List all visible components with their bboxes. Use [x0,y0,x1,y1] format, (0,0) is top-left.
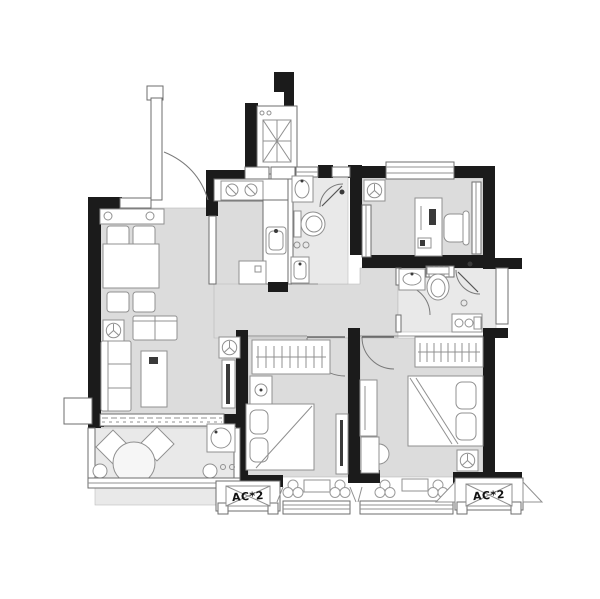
thin-wall [120,198,151,208]
thin-wall [396,315,401,332]
dining-chair [133,226,155,246]
wall-segment [362,166,388,178]
sofa [101,341,131,411]
monitor-icon [429,209,436,225]
faucet-icon [274,229,278,233]
dining-chair [107,292,129,312]
fan-coil-icon [219,337,240,358]
tv-icon [340,420,343,466]
fan-coil-icon [103,320,124,341]
study-window [386,162,454,179]
entry-door-arc [164,152,208,200]
chair-back [463,211,469,245]
wall-segment [483,166,495,258]
fan-coil-icon [457,450,478,471]
wall-segment [453,166,485,178]
planter [93,464,107,478]
sliding-door [100,414,224,426]
tray-icon [149,357,158,364]
toilet [427,274,449,300]
ac-label: AC*2 [232,489,265,504]
shaft-door [245,167,269,179]
planter [203,464,217,478]
wall-segment [483,330,495,477]
entry-door [147,86,208,200]
plant-icon [283,480,303,498]
entry-door-leaf [151,98,162,200]
tv-icon [226,364,230,404]
thin-wall [209,216,216,284]
wall-segment [318,165,333,178]
shower-head-icon [340,190,345,195]
shower-head-icon [468,262,473,267]
cabinet [361,437,379,473]
wall-segment [348,328,360,477]
bay-window-left [277,480,356,514]
pillow [456,382,476,409]
exterior-ledge [64,398,92,424]
dining-chair [107,226,129,246]
bottom-exterior: AC*2 [216,478,542,514]
wall-segment [88,197,101,428]
wall-segment [483,258,522,269]
toilet-tank [294,211,301,237]
shaft-door [271,167,295,179]
duct [496,268,508,324]
ac-label: AC*2 [473,488,506,503]
plant-icon [523,482,542,502]
knob-icon [104,212,112,220]
pillow [456,413,476,440]
dining-table [103,244,159,288]
window [332,167,350,177]
sill [304,480,330,492]
dining-chair [133,292,155,312]
pillow [250,410,268,434]
floor-plan: AC*2 [0,0,600,599]
wall-segment [88,197,122,210]
sill [402,479,428,491]
fan-coil-icon [364,180,385,201]
dresser [360,380,377,436]
ac-platform-left: AC*2 [216,481,280,514]
toilet-tank [427,267,449,274]
wall-segment [268,282,288,292]
fridge [239,261,266,284]
plant-icon [330,480,350,498]
knob-icon [146,212,154,220]
floor-plan-drawing: AC*2 [0,0,600,599]
wall-segment [362,255,483,268]
wall-segment [350,165,362,255]
